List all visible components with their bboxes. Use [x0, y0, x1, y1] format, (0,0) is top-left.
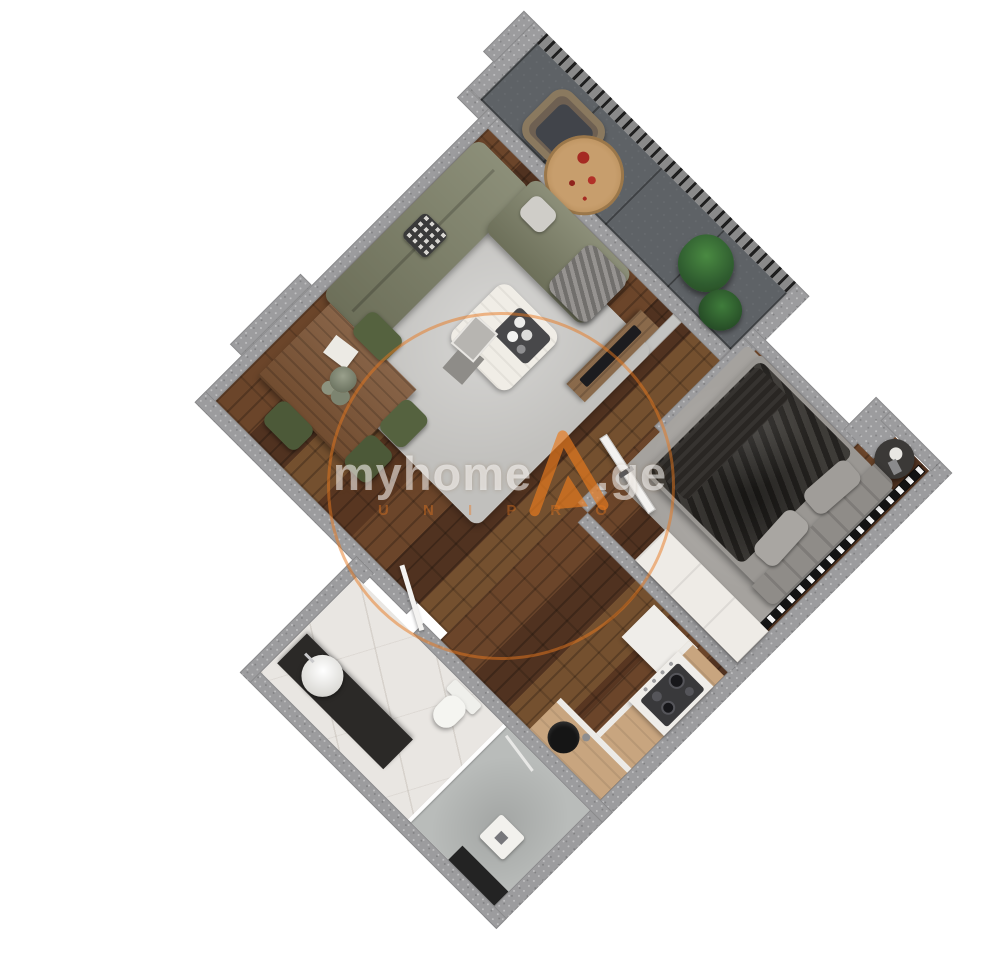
watermark-brand-text: myhome	[333, 446, 532, 501]
watermark-subtext: U N I P R O	[250, 502, 750, 519]
floor-plan-canvas: myhome .ge U N I P R O	[0, 0, 1000, 963]
